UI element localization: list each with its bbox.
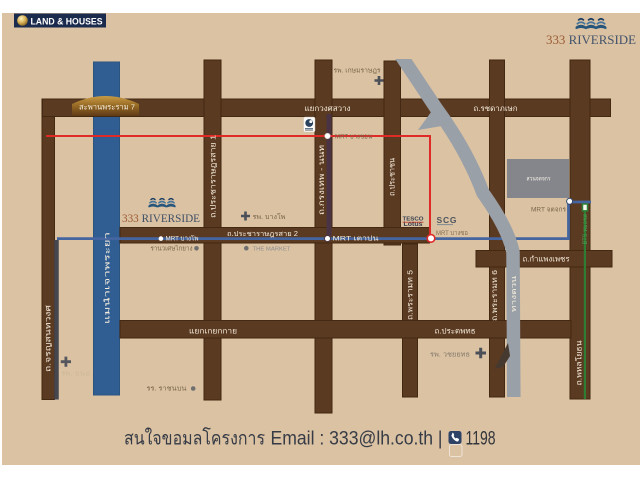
svg-text:สวนจตจกร: สวนจตจกร: [527, 176, 552, 183]
svg-text:รพ. ยนฮ: รพ. ยนฮ: [61, 371, 90, 378]
svg-text:MRT บางโพ: MRT บางโพ: [166, 234, 199, 242]
svg-text:รพ. บางโพ: รพ. บางโพ: [253, 213, 286, 221]
svg-text:MRT เตาปน: MRT เตาปน: [333, 235, 380, 242]
svg-text:แยกเกยกกาย: แยกเกยกกาย: [189, 327, 237, 336]
svg-text:ถ.พหลโยธน: ถ.พหลโยธน: [575, 340, 584, 385]
svg-text:ถ.พระรามท 6: ถ.พระรามท 6: [490, 270, 499, 321]
svg-text:รพ. เกษมราษฎร: รพ. เกษมราษฎร: [334, 68, 382, 75]
svg-text:แมนำเจาพระยา: แมนำเจาพระยา: [103, 232, 112, 324]
svg-text:333 RIVERSIDE: 333 RIVERSIDE: [122, 213, 200, 225]
svg-text:THE MARKET: THE MARKET: [253, 246, 291, 252]
svg-text:รร. ราชนบน: รร. ราชนบน: [147, 386, 188, 393]
svg-text:1198: 1198: [466, 429, 496, 450]
svg-text:MRT บางซอน: MRT บางซอน: [335, 134, 373, 141]
svg-text:ถ.พระรามท 5: ถ.พระรามท 5: [406, 270, 415, 320]
svg-text:ถ.จรญสนทวงศ: ถ.จรญสนทวงศ: [44, 304, 53, 372]
svg-text:ถ.กำแพงเพชร: ถ.กำแพงเพชร: [523, 255, 570, 264]
svg-text:ถ.รชดาภเษก: ถ.รชดาภเษก: [474, 104, 518, 113]
svg-text:รานวเศษไกยาง: รานวเศษไกยาง: [151, 245, 193, 253]
svg-text:Email : 333@lh.co.th |: Email : 333@lh.co.th |: [271, 429, 443, 450]
svg-text:ถ.ประชาราษฎรสาย 1: ถ.ประชาราษฎรสาย 1: [209, 135, 218, 218]
svg-text:MRT บางซอ: MRT บางซอ: [436, 230, 468, 237]
svg-text:รพ. วชยยทธ: รพ. วชยยทธ: [430, 352, 470, 359]
svg-text:ถ.ประชาราษฎรสาย 2: ถ.ประชาราษฎรสาย 2: [227, 231, 298, 238]
svg-text:ทางดวน: ทางดวน: [511, 276, 518, 312]
svg-text:ถ.ประดพทธ: ถ.ประดพทธ: [435, 327, 476, 336]
svg-text:สะพานพระราม 7: สะพานพระราม 7: [79, 103, 135, 112]
svg-text:BTS หมอชต: BTS หมอชต: [582, 213, 589, 244]
svg-text:สนใจขอมลโครงการ: สนใจขอมลโครงการ: [124, 427, 265, 450]
svg-text:333 RIVERSIDE: 333 RIVERSIDE: [546, 32, 636, 47]
svg-text:SCG: SCG: [437, 215, 458, 225]
svg-text:แยกวงศสวาง: แยกวงศสวาง: [305, 104, 351, 113]
svg-text:MRT จตจกร: MRT จตจกร: [531, 207, 567, 214]
svg-text:ถ.ประชาชน: ถ.ประชาชน: [388, 158, 397, 196]
svg-text:LAND & HOUSES: LAND & HOUSES: [31, 16, 103, 26]
svg-text:ถ.กรงเทพ - นนท: ถ.กรงเทพ - นนท: [317, 145, 326, 215]
